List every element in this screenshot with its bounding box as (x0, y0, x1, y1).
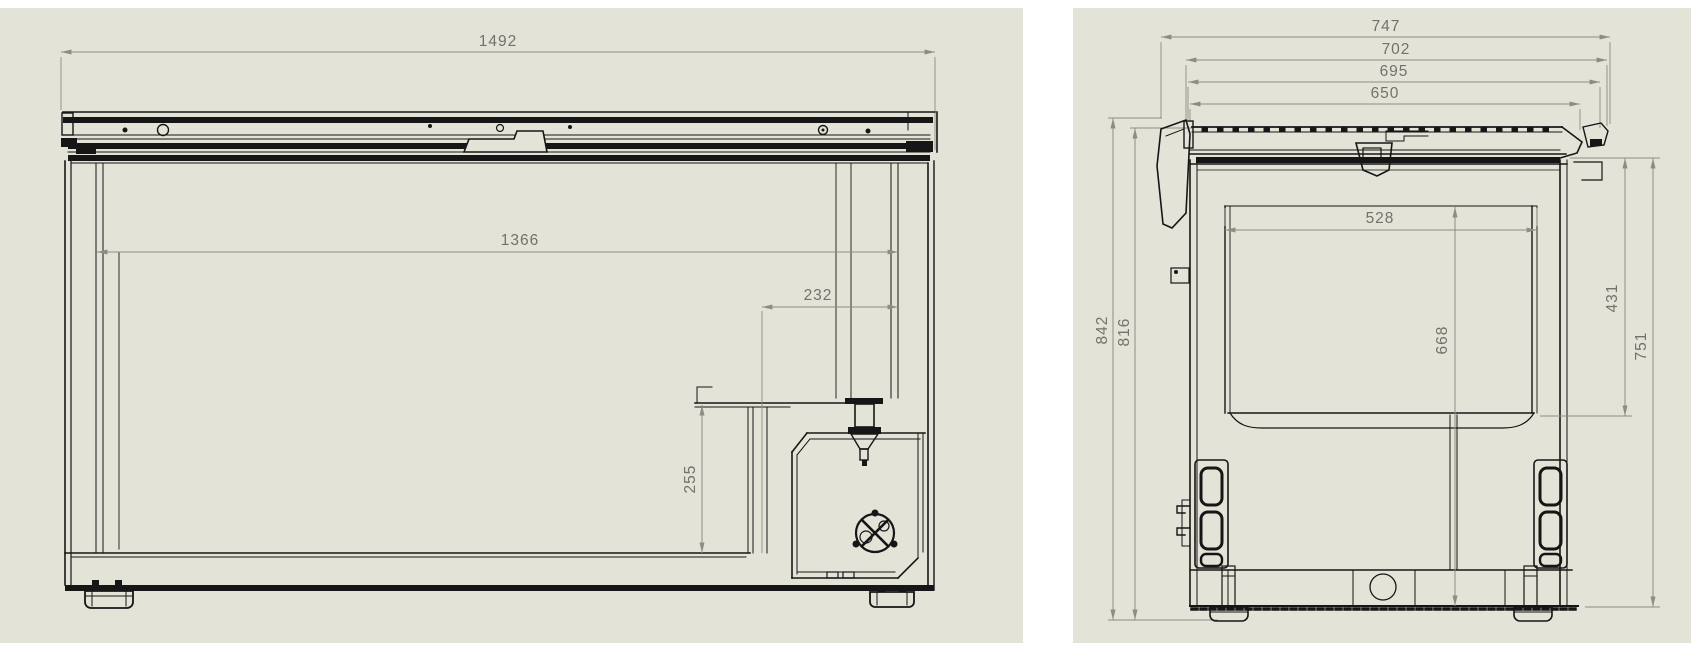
technical-drawing-page: 1492 (0, 0, 1691, 650)
dim-side-lid-outer-depth-label: 695 (1380, 63, 1409, 80)
dim-side-front-inner-height-label: 431 (1604, 284, 1621, 313)
dim-side-inner-depth-label: 528 (1366, 210, 1395, 227)
dim-side-overall-depth-label: 747 (1372, 18, 1401, 35)
dim-front-recess-width-label: 232 (804, 287, 833, 304)
dim-side-depth-to-handle-label: 702 (1382, 41, 1411, 58)
dim-side-lid-depth-label: 650 (1371, 85, 1400, 102)
lid-screw-icon (568, 125, 572, 129)
side-view-panel (1073, 8, 1691, 643)
dim-side-height-excl-feet-label: 816 (1116, 318, 1133, 347)
lid-screw-icon (428, 124, 432, 128)
lid-screw-icon (123, 128, 128, 133)
lid-screw-icon (866, 129, 871, 134)
dim-front-recess-height-label: 255 (682, 465, 699, 494)
dim-front-inner-width-label: 1366 (501, 232, 539, 249)
dim-side-inner-height-label: 668 (1434, 326, 1451, 355)
dim-side-front-height-label: 751 (1633, 332, 1650, 361)
front-view-panel (0, 8, 1023, 643)
dim-front-overall-width-label: 1492 (479, 33, 517, 50)
dim-side-overall-height-label: 842 (1094, 316, 1111, 345)
drawing-canvas: 1492 (0, 0, 1691, 650)
